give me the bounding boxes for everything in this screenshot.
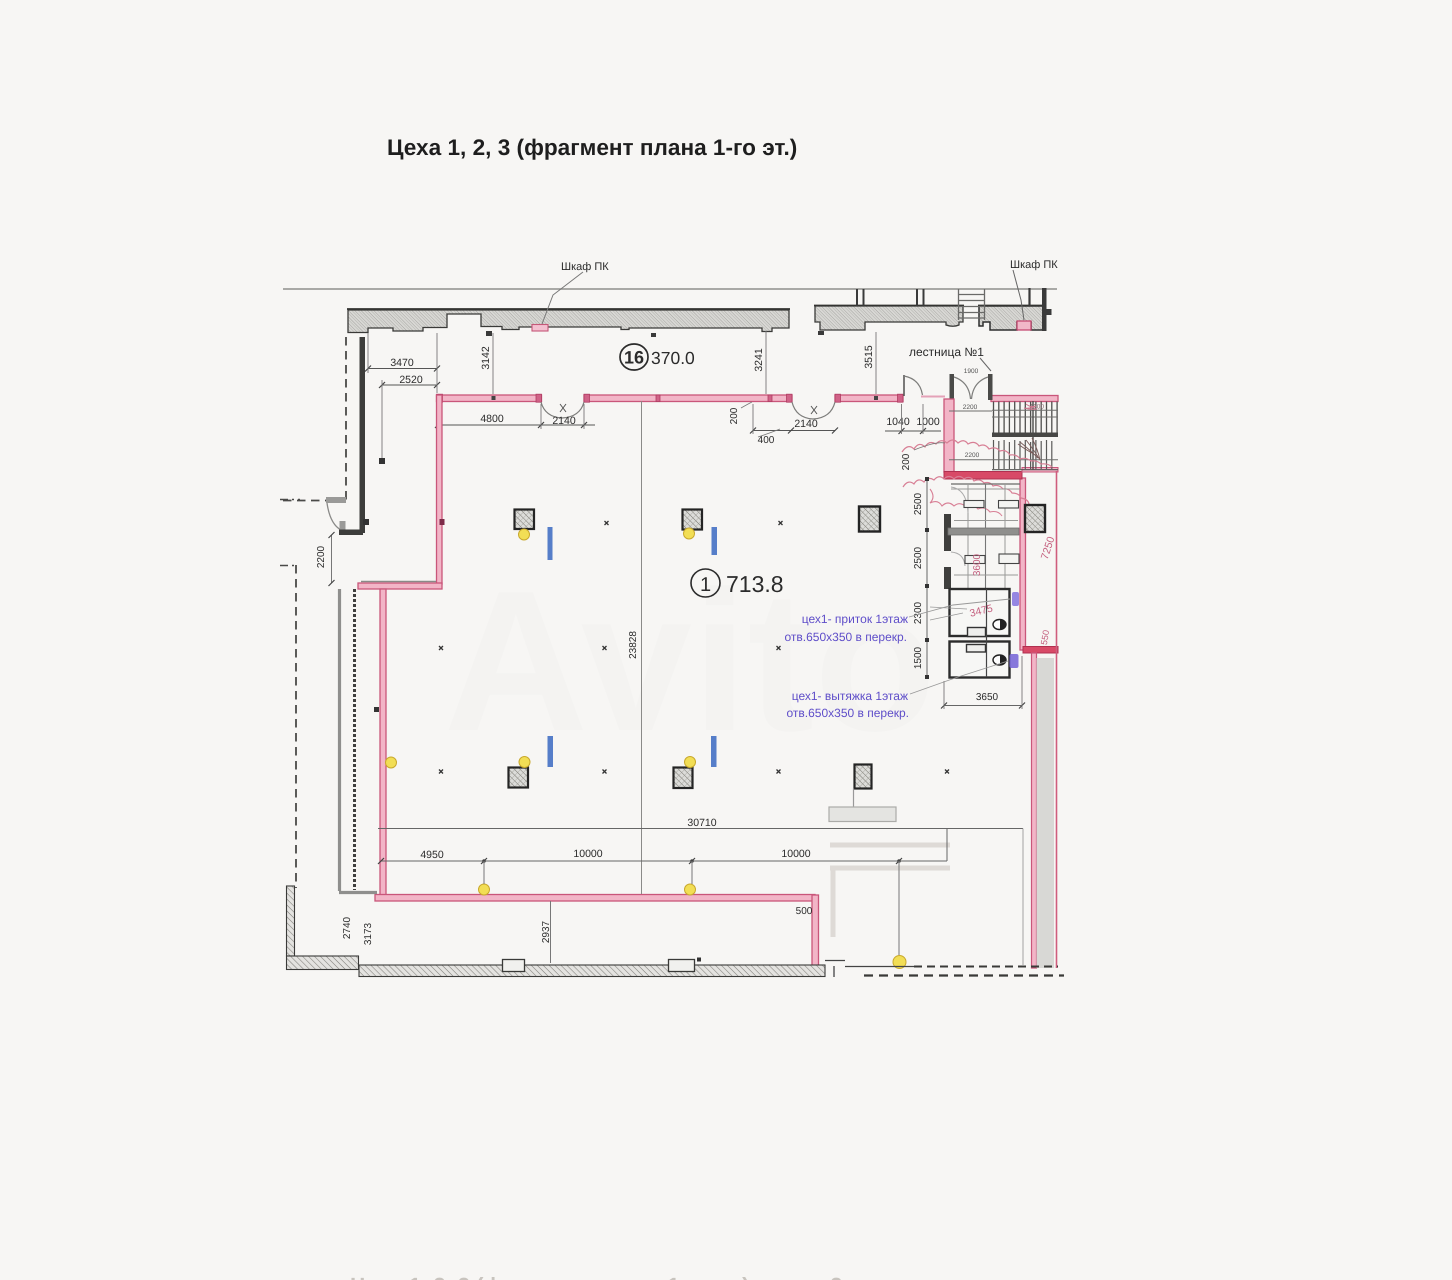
svg-text:23828: 23828 [628,631,639,659]
svg-text:2520: 2520 [399,374,423,386]
svg-text:2140: 2140 [794,418,818,430]
svg-text:2200: 2200 [965,452,980,459]
svg-text:отв.650х350 в перекр.: отв.650х350 в перекр. [787,706,909,720]
svg-text:1500: 1500 [913,646,924,669]
svg-text:Шкаф ПК: Шкаф ПК [1010,259,1058,271]
svg-text:2500: 2500 [913,492,924,515]
svg-text:30710: 30710 [687,817,716,829]
svg-text:3470: 3470 [390,357,414,369]
svg-text:16: 16 [624,348,644,368]
svg-text:Avito: Avito [444,550,937,773]
svg-text:2740: 2740 [342,916,353,939]
svg-text:3241: 3241 [753,348,765,372]
svg-text:Цеха 1, 2, 3 (фрагмент плана 1: Цеха 1, 2, 3 (фрагмент плана 1-го эт.) н… [350,1273,842,1280]
svg-text:лестница №1: лестница №1 [909,345,984,359]
svg-text:4800: 4800 [480,413,504,425]
svg-text:10000: 10000 [573,848,602,860]
svg-text:цех1- приток 1этаж: цех1- приток 1этаж [802,612,908,626]
svg-text:1: 1 [700,574,711,596]
svg-text:1000: 1000 [916,416,940,428]
svg-text:Цеха 1, 2, 3 (фрагмент плана 1: Цеха 1, 2, 3 (фрагмент плана 1-го эт.) [387,135,797,160]
svg-text:3173: 3173 [363,922,374,945]
svg-text:3600: 3600 [972,553,983,576]
svg-text:200: 200 [901,453,912,470]
svg-text:3650: 3650 [976,692,999,703]
svg-text:500: 500 [796,906,813,917]
svg-text:3142: 3142 [480,346,492,370]
svg-text:2200: 2200 [316,545,327,568]
svg-text:713.8: 713.8 [726,571,784,597]
svg-text:отв.650х350 в перекр.: отв.650х350 в перекр. [785,630,907,644]
svg-text:3515: 3515 [863,345,875,369]
svg-text:1900: 1900 [964,368,979,375]
svg-text:Шкаф ПК: Шкаф ПК [561,261,609,273]
svg-text:1040: 1040 [886,416,910,428]
svg-text:2200: 2200 [963,404,978,411]
svg-text:10000: 10000 [781,848,810,860]
svg-text:370.0: 370.0 [651,348,695,368]
svg-text:4950: 4950 [420,849,444,861]
svg-text:2300: 2300 [913,601,924,624]
svg-text:цех1- вытяжка 1этаж: цех1- вытяжка 1этаж [792,689,908,703]
svg-text:2500: 2500 [913,546,924,569]
svg-text:200: 200 [729,407,740,424]
